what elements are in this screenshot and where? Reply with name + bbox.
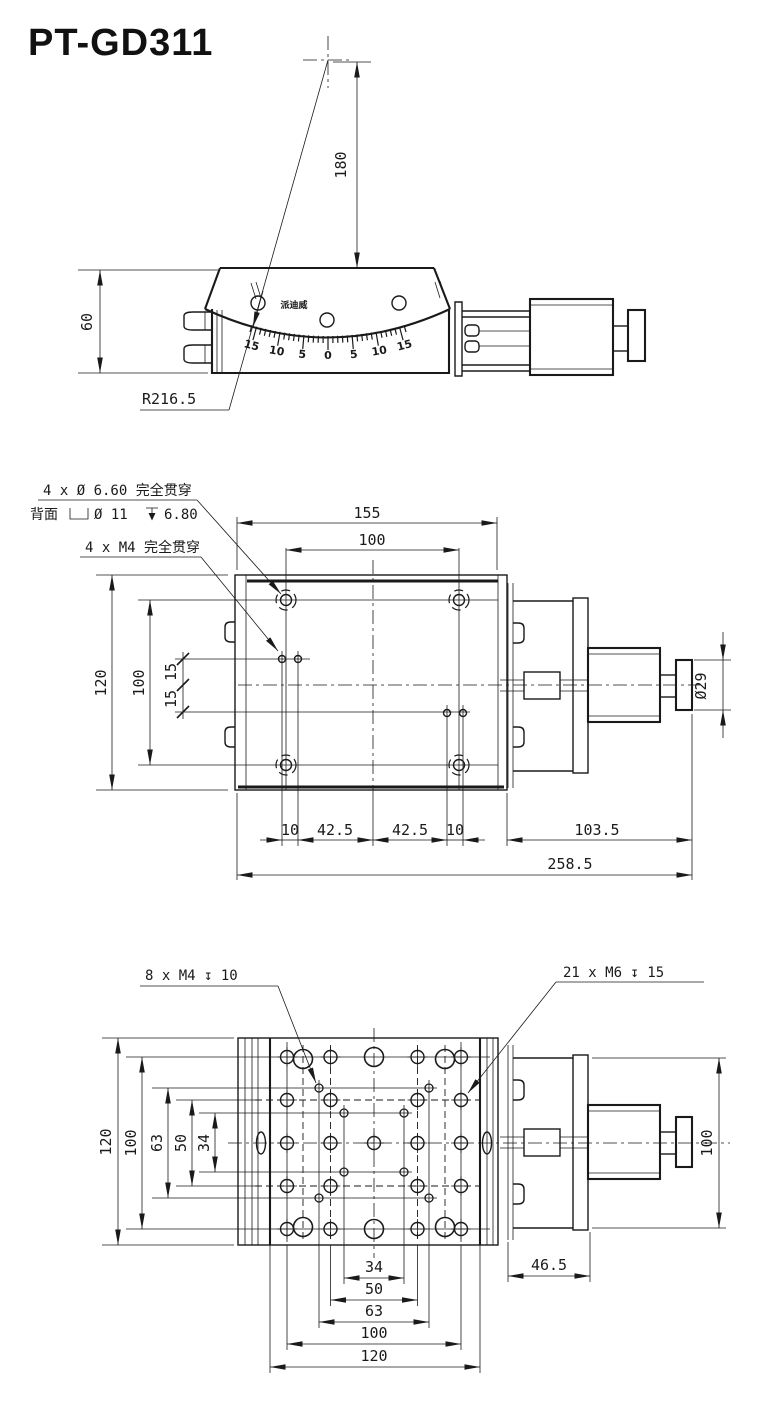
m4-holes: [279, 656, 467, 717]
dim-120-bottom-label: 120: [360, 1347, 387, 1365]
dim-100-top-label: 100: [358, 531, 385, 549]
micrometer-spindle: [613, 326, 628, 351]
micrometer-assembly-bottom: [500, 1045, 692, 1240]
bottom-view: 8 x M4 ↧ 10 21 x M6 ↧ 15: [97, 965, 730, 1373]
dim-10-right-label: 10: [446, 821, 464, 839]
bracket-screw: [513, 1184, 524, 1204]
dim-100-left-b-label: 100: [122, 1129, 140, 1156]
note-m6: 21 x M6 ↧ 15: [563, 965, 664, 981]
note-counterbore-line1: 4 x Ø 6.60 完全贯穿: [43, 482, 192, 499]
bracket-plate: [573, 1055, 588, 1230]
dim-10-left-label: 10: [281, 821, 299, 839]
face-hole: [320, 313, 334, 327]
lock-knob: [184, 312, 212, 330]
note-m4: 4 x M4 完全贯穿: [85, 539, 200, 556]
bracket-plate: [573, 598, 588, 773]
dim-63-bottom-label: 63: [365, 1302, 383, 1320]
dim-120-left-b-label: 120: [97, 1128, 115, 1155]
dim-dia-29-label: Ø29: [692, 672, 710, 699]
scale-label: 5: [298, 348, 307, 362]
dim-15-upper-label: 15: [162, 663, 180, 681]
face-hole: [392, 296, 406, 310]
note-counterbore-back: 背面: [30, 507, 58, 523]
dim-60-label: 60: [78, 313, 96, 331]
bracket-screw: [513, 1080, 524, 1100]
dim-103-5-label: 103.5: [574, 821, 619, 839]
micrometer-drive: [455, 299, 645, 376]
radius-label: R216.5: [142, 390, 196, 408]
dim-100-left-label: 100: [130, 669, 148, 696]
micrometer-body: [530, 299, 613, 375]
micrometer-assembly-plan: [500, 583, 692, 788]
scale-label: 15: [242, 337, 260, 354]
dim-100-right-label: 100: [698, 1129, 716, 1156]
drawing-sheet: PT-GD311 R216.5 180 60: [0, 0, 770, 1410]
micrometer-knob: [628, 310, 645, 361]
dim-42-5-left-label: 42.5: [317, 821, 353, 839]
lock-knob: [184, 345, 212, 363]
note-counterbore-dia: Ø 11: [94, 507, 128, 523]
micrometer-spindle: [660, 675, 676, 697]
cad-drawing: R216.5 180 60 15105051015 派迪威: [0, 0, 770, 1410]
scale-label: 5: [349, 348, 358, 362]
dim-258-5-label: 258.5: [547, 855, 592, 873]
side-screw: [225, 622, 235, 642]
bracket-screw: [513, 623, 524, 643]
micrometer-body: [588, 1105, 660, 1179]
dim-34-left-label: 34: [195, 1134, 213, 1152]
dim-34-bottom-label: 34: [365, 1258, 383, 1276]
scale-label: 0: [324, 349, 332, 362]
micrometer-knob: [676, 1117, 692, 1167]
dim-50-left-label: 50: [172, 1134, 190, 1152]
dim-100-bottom-label: 100: [360, 1324, 387, 1342]
dim-46-5-label: 46.5: [531, 1256, 567, 1274]
counterbore-symbol-icon: [70, 508, 88, 519]
scale-label: 10: [268, 343, 286, 359]
dim-63-left-label: 63: [148, 1134, 166, 1152]
scale-label: 10: [371, 343, 389, 359]
side-view: R216.5 180 60 15105051015 派迪威: [78, 36, 645, 410]
dim-155-label: 155: [353, 504, 380, 522]
side-screw: [225, 727, 235, 747]
dim-120-left-label: 120: [92, 669, 110, 696]
plan-view: 4 x Ø 6.60 完全贯穿 背面 Ø 11 6.80 4 x M4 完全贯穿: [30, 482, 731, 880]
brand-text: 派迪威: [280, 299, 307, 311]
scale-label: 15: [395, 337, 413, 354]
note-m4-bottom: 8 x M4 ↧ 10: [145, 968, 238, 984]
counterbore-holes: [276, 590, 469, 775]
dim-180-label: 180: [332, 151, 350, 178]
dim-42-5-right-label: 42.5: [392, 821, 428, 839]
note-counterbore-depth: 6.80: [164, 507, 198, 523]
dim-50-bottom-label: 50: [365, 1280, 383, 1298]
bracket-screw: [513, 727, 524, 747]
dim-15-lower-label: 15: [162, 690, 180, 708]
